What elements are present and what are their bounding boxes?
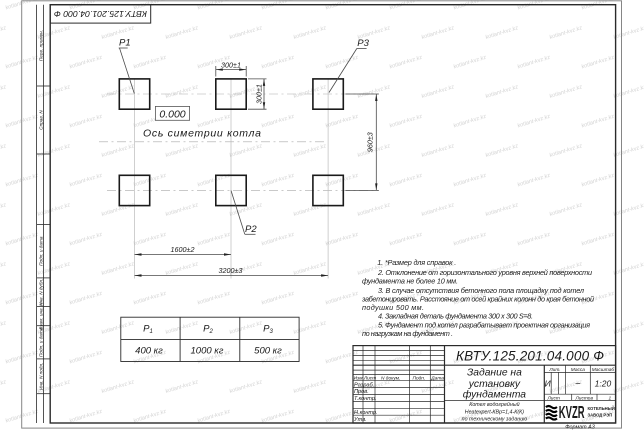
svg-text:фундамента не более 10 мм.: фундамента не более 10 мм. [362, 277, 458, 286]
svg-text:500 кг: 500 кг [254, 345, 282, 356]
svg-text:установку: установку [468, 379, 521, 390]
svg-text:КОТЕЛЬНЫЙ: КОТЕЛЬНЫЙ [588, 406, 615, 411]
svg-text:3. В случае отсутствия бетонн: 3. В случае отсутствия бетонного пола пл… [378, 286, 584, 295]
svg-text:Ось симетрии котла: Ось симетрии котла [143, 128, 261, 140]
svg-text:P3: P3 [357, 38, 369, 49]
svg-text:фундамента: фундамента [463, 388, 527, 400]
svg-text:4. Закладная деталь фундамент: 4. Закладная деталь фундамента 300 х 300… [378, 312, 533, 321]
svg-text:Справ. N: Справ. N [38, 110, 43, 130]
svg-text:Heatexpert-КВр=1,4-К(К): Heatexpert-КВр=1,4-К(К) [465, 410, 525, 416]
svg-text:забетонировать. Расстояние от: забетонировать. Расстояние от осей крайн… [361, 295, 594, 304]
svg-text:P2: P2 [245, 224, 257, 235]
svg-text:3200±3: 3200±3 [219, 266, 243, 275]
svg-text:Инв. N дубл.: Инв. N дубл. [38, 279, 43, 306]
svg-text:Формат А3: Формат А3 [565, 425, 595, 430]
svg-text:Масса: Масса [571, 367, 586, 373]
svg-text:Лит.: Лит. [548, 367, 560, 373]
svg-text:Утв.: Утв. [353, 417, 367, 423]
svg-text:Н.контр.: Н.контр. [354, 410, 378, 416]
svg-text:5. Фундамент под котел разраб: 5. Фундамент под котел разрабатывает про… [378, 320, 590, 329]
svg-text:400 кг: 400 кг [135, 345, 163, 356]
svg-text:Дата: Дата [430, 376, 444, 382]
svg-text:Котел водогрейный: Котел водогрейный [469, 401, 519, 408]
svg-text:И: И [545, 378, 552, 388]
svg-text:Листов: Листов [575, 395, 594, 401]
svg-text:300±1: 300±1 [254, 84, 263, 104]
svg-text:1600±2: 1600±2 [171, 245, 195, 254]
svg-text:Инв. N подл.: Инв. N подл. [38, 363, 43, 390]
svg-text:1:20: 1:20 [595, 378, 612, 388]
svg-text:–: – [575, 377, 581, 387]
svg-text:0.000: 0.000 [159, 109, 185, 121]
svg-text:1000 кг: 1000 кг [191, 345, 224, 356]
svg-text:1: 1 [609, 395, 612, 401]
svg-text:Изм.Лист: Изм.Лист [354, 376, 377, 382]
svg-text:Пров.: Пров. [354, 389, 369, 395]
svg-text:1. *Размер для справок .: 1. *Размер для справок . [377, 258, 456, 267]
svg-text:960±3: 960±3 [366, 132, 375, 152]
svg-text:Задание на: Задание на [467, 368, 522, 379]
svg-text:P1: P1 [119, 38, 131, 49]
svg-text:КВТУ.125.201.04.000 Ф: КВТУ.125.201.04.000 Ф [456, 349, 604, 364]
svg-text:N докум.: N докум. [381, 376, 400, 382]
svg-text:по техническому заданию: по техническому заданию [462, 417, 527, 423]
svg-text:Масштаб: Масштаб [592, 367, 615, 373]
svg-text:300±1: 300±1 [221, 60, 241, 69]
svg-text:Лист: Лист [547, 395, 560, 401]
svg-text:Перв. примен.: Перв. примен. [38, 30, 43, 61]
svg-text:KVZR: KVZR [559, 402, 585, 422]
svg-text:по нагрузкам на фундамент .: по нагрузкам на фундамент . [362, 329, 453, 338]
svg-text:Разраб.: Разраб. [354, 382, 374, 388]
svg-text:2. Отклонение от горизонтальн: 2. Отклонение от горизонтального уровня … [377, 268, 592, 277]
svg-text:Т.контр.: Т.контр. [354, 396, 377, 402]
svg-text:Подп. и дата: Подп. и дата [38, 236, 43, 266]
svg-text:Подп. и дата: Подп. и дата [38, 327, 43, 357]
svg-text:ЗАВОД РЭП: ЗАВОД РЭП [588, 412, 613, 417]
svg-text:Взам. инв. N: Взам. инв. N [38, 302, 43, 330]
svg-text:Подп.: Подп. [413, 376, 426, 382]
svg-text:КВТУ.125.201.04.000 Ф: КВТУ.125.201.04.000 Ф [54, 9, 147, 19]
